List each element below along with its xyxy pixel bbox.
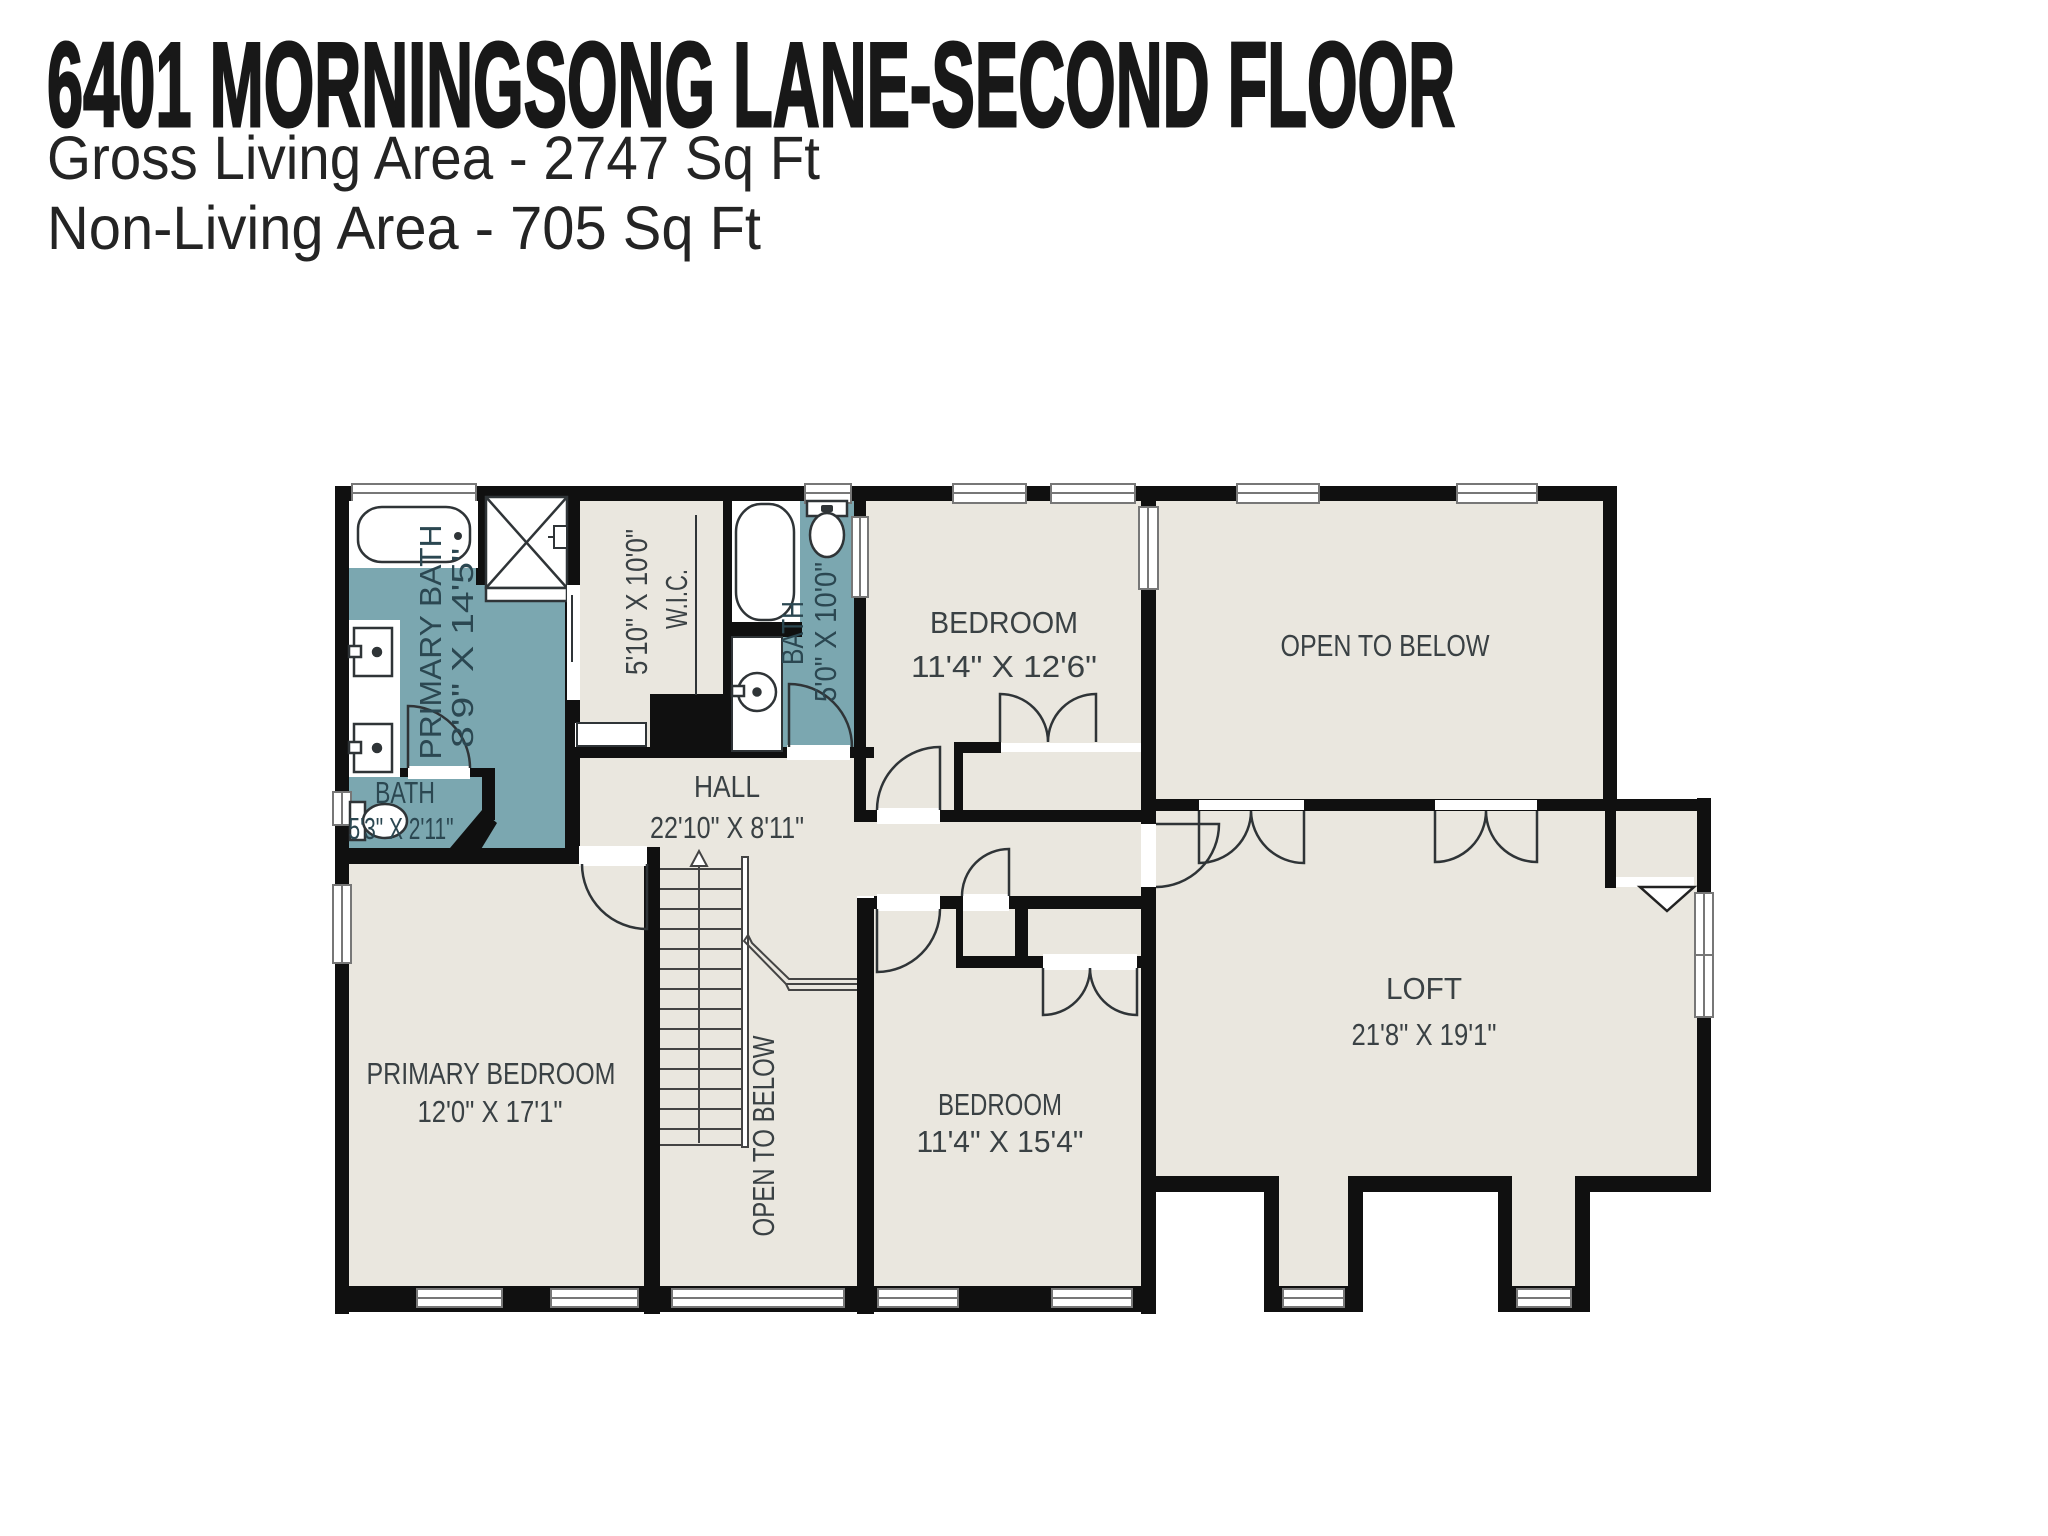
svg-text:LOFT: LOFT [1386, 971, 1462, 1006]
svg-text:Gross Living Area - 2747 Sq Ft: Gross Living Area - 2747 Sq Ft [47, 124, 820, 192]
svg-text:BATH: BATH [775, 601, 810, 665]
svg-text:5'0" X 10'0": 5'0" X 10'0" [808, 562, 843, 702]
svg-text:21'8" X 19'1": 21'8" X 19'1" [1352, 1017, 1497, 1052]
svg-text:5'10" X 10'0": 5'10" X 10'0" [619, 529, 654, 675]
svg-text:W.I.C.: W.I.C. [659, 569, 694, 629]
svg-text:PRIMARY BATH: PRIMARY BATH [413, 525, 448, 760]
svg-text:11'4" X 15'4": 11'4" X 15'4" [917, 1124, 1084, 1159]
svg-text:PRIMARY BEDROOM: PRIMARY BEDROOM [367, 1056, 616, 1091]
svg-text:12'0" X 17'1": 12'0" X 17'1" [418, 1094, 563, 1129]
svg-text:8'9" X 14'5": 8'9" X 14'5" [445, 548, 480, 748]
svg-text:BEDROOM: BEDROOM [930, 605, 1078, 640]
svg-text:OPEN TO BELOW: OPEN TO BELOW [746, 1035, 781, 1237]
svg-text:OPEN TO BELOW: OPEN TO BELOW [1281, 628, 1491, 663]
svg-text:11'4" X 12'6": 11'4" X 12'6" [911, 649, 1097, 684]
svg-text:22'10" X 8'11": 22'10" X 8'11" [650, 810, 804, 845]
svg-text:HALL: HALL [694, 769, 760, 804]
svg-text:BATH: BATH [375, 775, 435, 810]
svg-text:Non-Living Area - 705 Sq Ft: Non-Living Area - 705 Sq Ft [47, 194, 761, 262]
svg-text:BEDROOM: BEDROOM [938, 1087, 1062, 1122]
svg-text:5'3" X 2'11": 5'3" X 2'11" [349, 811, 454, 846]
